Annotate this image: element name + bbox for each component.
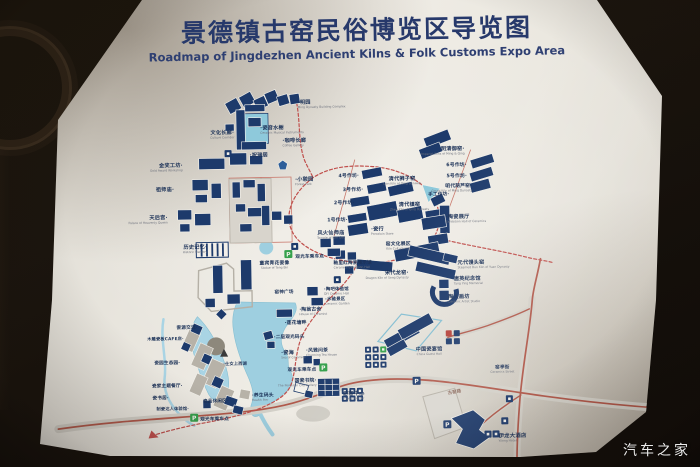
map-label-en: China Guest Hall <box>417 352 442 356</box>
map-building <box>257 183 265 201</box>
map-label-en: Exhibition Hall of Ceramics <box>446 219 487 224</box>
map-label-en: Ceramic Musical Instruments <box>260 130 304 135</box>
expo-area-map: PPPPP·明园Ming Dynasty Building Complex文化长… <box>0 0 700 467</box>
map-building <box>240 224 252 232</box>
map-building <box>267 341 275 348</box>
map-label-en: Health Pier <box>252 398 269 402</box>
map-building <box>240 260 252 290</box>
legend-icon-glyph <box>382 356 384 358</box>
facility-icon-glyph <box>336 278 339 281</box>
legend-icon-glyph <box>382 363 384 365</box>
map-label-en: The Porcelain City Gallery <box>277 383 317 388</box>
legend-icon-glyph <box>374 348 376 350</box>
map-building <box>311 297 323 305</box>
map-label-zh: 瓷书居· <box>152 394 169 401</box>
map-label-zh: 窑神广场 <box>274 288 294 295</box>
legend-chip-icon <box>446 338 452 344</box>
map-building <box>213 265 223 293</box>
map-label-zh: 木雕瓷板CAFE店· <box>146 335 184 343</box>
map-building <box>180 224 190 232</box>
map-building <box>439 279 449 288</box>
legend-chip-icon <box>446 330 452 336</box>
map-building <box>276 94 289 107</box>
map-label-en: Tang Ying Memorial <box>453 281 483 286</box>
map-building <box>313 359 320 366</box>
photo-frame: 景德镇古窑民俗博览区导览图 Roadmap of Jingdezhen Anci… <box>0 0 700 467</box>
legend-icon-glyph <box>375 364 377 366</box>
map-label-zh: 观光车乘车点 <box>288 366 317 374</box>
map-building <box>235 204 245 212</box>
facility-icon-glyph <box>227 152 230 155</box>
facility-icon-glyph <box>495 433 498 436</box>
map-label-zh: 制瓷达人体验馆· <box>156 405 189 413</box>
facility-icon-glyph <box>293 245 296 248</box>
map-building <box>227 294 240 304</box>
map-label-en: Porcelain Store <box>371 232 394 236</box>
pavilion-icon <box>278 160 288 170</box>
map-label-en: House of Ceramist <box>299 312 328 316</box>
map-label-en: Ceramics Exhibition Hall <box>334 265 371 270</box>
parking-letter: P <box>445 422 450 429</box>
map-label-zh: 瓷家主题餐厅· <box>152 382 183 390</box>
map-building <box>276 309 292 317</box>
map-label-en: Temple of Kiln God <box>316 235 345 240</box>
grove <box>296 405 330 422</box>
map-building <box>192 179 208 190</box>
map-building <box>232 182 240 198</box>
map-label-en: Ceramic Garden <box>325 301 350 305</box>
parking-letter: P <box>192 415 197 422</box>
map-label-en: Zhen Kiln of Qing Dynasty <box>390 207 430 212</box>
map-label-zh: 5号作坊· <box>446 172 467 179</box>
tourist-center-building <box>318 378 340 396</box>
map-building <box>189 373 208 396</box>
map-label-en: Yilong Hotel <box>499 438 517 442</box>
map-label-en: Ceramics Street <box>490 369 515 373</box>
map-building <box>230 153 247 165</box>
map-label-en: Dragon Kiln of Song Dynasty <box>366 275 409 280</box>
map-label-en: Ming Dynasty Building Complex <box>298 104 346 109</box>
map-label-en: Statue of Tong Bin <box>261 265 289 269</box>
map-building <box>195 194 207 202</box>
parking-letter: P <box>414 378 419 385</box>
map-label-en: Sea of Ceramics <box>281 355 306 359</box>
frame-wood-edge <box>0 150 10 410</box>
map-label-zh: 瓷源交流· <box>176 324 197 331</box>
map-building <box>243 180 255 188</box>
map-building <box>205 298 215 307</box>
map-label-en: DIY Ceramic Hall <box>324 291 349 295</box>
legend-icon-glyph <box>367 364 369 366</box>
map-label-en: Kiln Culture Hall <box>386 246 410 250</box>
map-building <box>272 211 282 220</box>
map-label-zh: 3号作坊· <box>343 186 364 193</box>
map-building <box>327 248 340 256</box>
map-label-en: Palace of Heavenly Queen <box>128 220 168 225</box>
hotel-parking-lot <box>423 388 467 439</box>
map-building <box>178 210 192 220</box>
map-building <box>347 252 356 260</box>
map-building <box>347 212 367 223</box>
map-label-en: Imperial Kilns of Ming & Qing <box>421 151 465 156</box>
map-label-zh: 6号作坊· <box>446 161 467 168</box>
map-label-en: Coffee Gallery <box>282 143 304 147</box>
map-label-zh: 观光车乘车点 <box>295 252 324 260</box>
legend-icon-glyph <box>382 348 384 350</box>
facility-icon-glyph <box>508 397 511 400</box>
map-building <box>284 215 293 224</box>
legend-icon-glyph <box>367 356 369 358</box>
map-building <box>239 389 251 400</box>
map-label-en: Tourist Center <box>342 396 365 400</box>
legend-icon-glyph <box>375 356 377 358</box>
map-building <box>248 208 262 217</box>
sign-content: 景德镇古窑民俗博览区导览图 Roadmap of Jingdezhen Anci… <box>0 0 700 467</box>
legend-icon-glyph <box>367 348 369 350</box>
map-building <box>415 261 456 280</box>
map-building <box>307 287 318 296</box>
map-label-en: Forest Park <box>295 182 312 186</box>
map-building <box>241 141 266 149</box>
map-building <box>245 104 265 111</box>
map-building <box>361 167 382 180</box>
map-building <box>261 205 269 225</box>
map-label-en: Ceramic Artist Studio <box>448 299 480 304</box>
map-label-zh: 1号作坊· <box>327 216 348 223</box>
map-building <box>211 183 221 198</box>
map-stream <box>259 411 272 434</box>
watermark: 汽车之家 <box>623 440 691 460</box>
map-label-zh: ·祝瑞居 <box>250 150 268 158</box>
parking-letter: P <box>321 365 326 372</box>
facility-icon-glyph <box>487 433 490 436</box>
map-label-en: Culture Corridor <box>210 135 235 139</box>
map-label-en: Charming Tea House <box>306 353 337 358</box>
map-label-zh: 4号作坊· <box>338 172 359 179</box>
legend-chip-icon <box>454 338 460 344</box>
map-label-en: Historic Memory <box>183 250 208 254</box>
map-building <box>347 222 368 236</box>
map-label-en: Lion Kiln of Qing Dynasty <box>383 181 421 186</box>
sign-panel: 景德镇古窑民俗博览区导览图 Roadmap of Jingdezhen Anci… <box>0 0 700 467</box>
map-label-en: Gold Award Workshop <box>150 168 183 173</box>
map-building <box>195 213 211 225</box>
map-building <box>199 158 225 169</box>
map-label-zh: 瓷园生态园· <box>154 359 180 366</box>
map-building <box>304 390 313 399</box>
parking-letter: P <box>286 251 291 258</box>
map-label-zh: 祖师庙· <box>155 185 174 193</box>
facility-icon-glyph <box>503 420 506 423</box>
map-label-en: Steamed Bun Kiln of Yuan Dynasty <box>458 265 510 270</box>
legend-chip-icon <box>454 330 460 336</box>
